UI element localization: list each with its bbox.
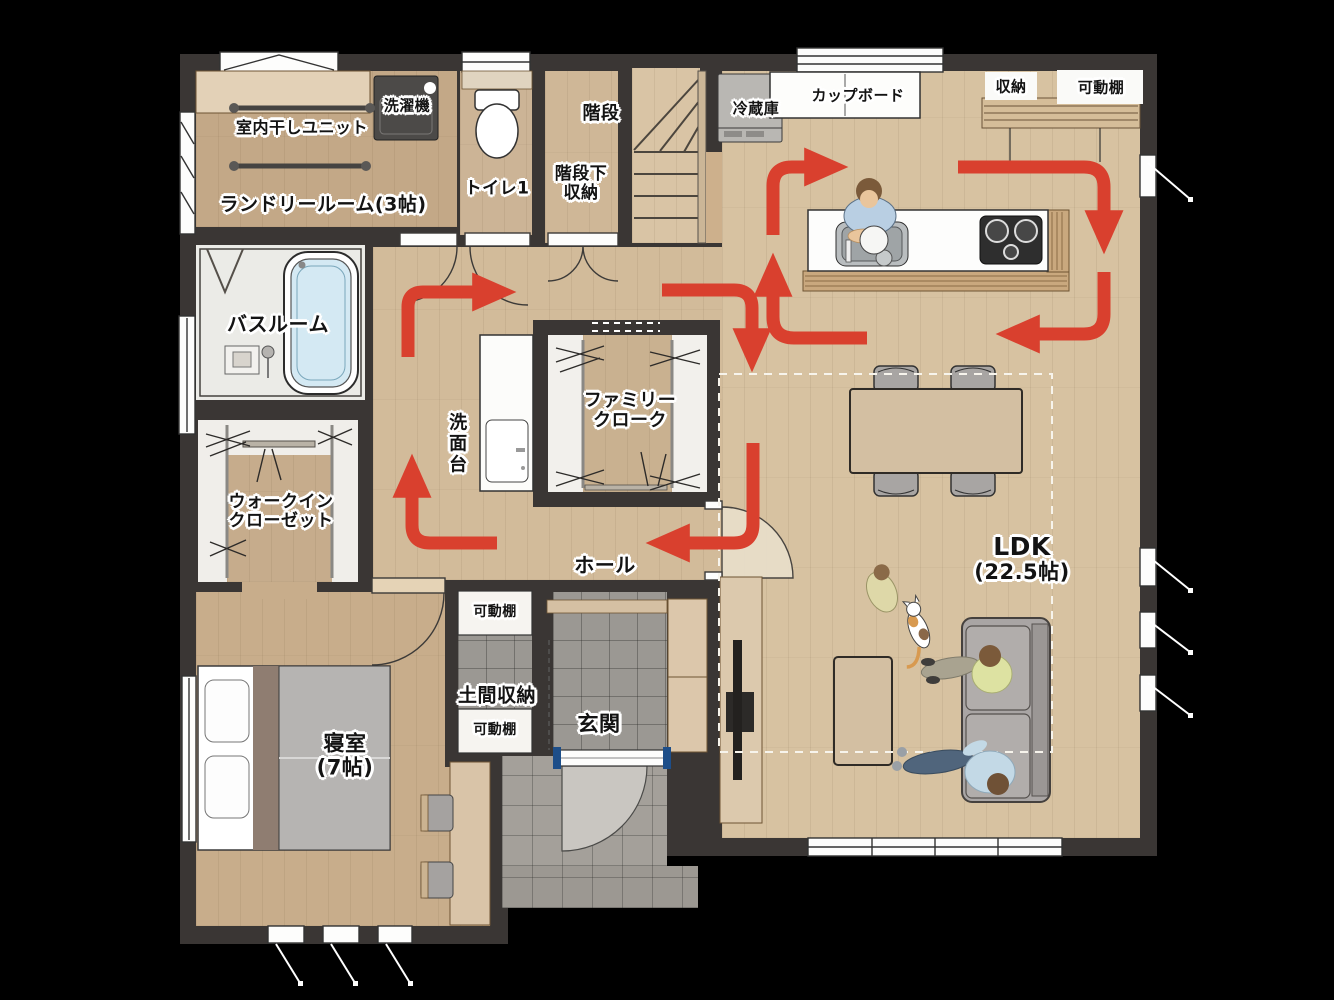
label-washer: 洗濯機 [384,98,431,115]
label-bedroom: 寝室 (7帖) [317,732,374,779]
window-bedroom-bottom-1 [268,926,304,986]
window-right-3 [1140,612,1193,655]
flow-arrow-to-sink [773,167,812,235]
label-bathroom: バスルーム [227,313,329,335]
pillow [205,680,249,742]
dish [860,226,888,254]
label-ldk: LDK (22.5帖) [974,533,1070,585]
label-wic: ウォークイン クローゼット [229,493,334,531]
label-hall: ホール [574,554,636,576]
window-bedroom-bottom-2 [323,926,359,986]
bedroom-desk [421,762,490,925]
washroom-door [400,233,457,246]
label-laundry-room: ランドリールーム(3帖) [219,194,426,215]
entrance-door-post-left [553,747,561,769]
genkan-step [547,600,667,613]
tv [733,640,742,780]
flow-arrow-up-kitchen [773,289,867,338]
bedroom-door [372,578,445,593]
under-stair-doors [548,233,618,246]
label-storage: 収納 [995,79,1026,96]
label-doma-shelf-top: 可動棚 [473,605,517,621]
label-laundry-unit: 室内干しユニット [236,119,368,137]
stairs-treads [634,78,700,218]
label-family-cloak: ファミリー クローク [584,391,677,431]
window-right-2 [1140,548,1193,593]
vanity-unit [480,335,533,491]
stair-landing [706,152,722,243]
desk-chair [421,795,453,831]
label-cupboard: カップボード [811,88,904,105]
plan-overlay [0,0,1334,1000]
shoe-cabinet [668,599,707,752]
bath-folding-door [207,249,243,292]
sink-faucet [846,240,851,262]
window-top-kitchen [797,48,943,72]
label-toilet: トイレ1 [465,179,530,198]
label-stairs: 階段 [583,104,620,124]
tv-board [720,577,762,823]
label-under-stair: 階段下 収納 [555,165,608,203]
label-doma: 土間収納 [458,685,536,706]
label-doma-shelf-bottom: 可動棚 [473,723,517,739]
label-fridge: 冷蔵庫 [733,101,780,118]
dining-set [850,366,1022,496]
toilet-door [465,233,530,246]
wic-opening [242,582,317,599]
window-right-1 [1140,155,1193,202]
label-vanity: 洗面台 [446,413,466,476]
kitchen-island [803,210,1069,291]
shower-fixture [262,346,274,358]
window-left-laundry [180,112,195,234]
toilet-fixture [462,71,532,158]
pillow [205,756,249,818]
coffee-table [834,657,892,765]
flow-arrow-to-washroom [412,490,497,543]
flow-arrow-into-ldk [662,290,752,336]
label-genkan: 玄関 [578,713,621,737]
person-child [858,562,905,617]
cloak-open-entry-dashed [592,323,660,331]
window-bedroom-bottom-3 [378,926,413,986]
desk-chair [421,862,453,898]
stair-rail [698,71,706,243]
flow-arrow-to-toilet [408,292,480,357]
entrance-door-swing [562,766,647,851]
floor-plan: 室内干しユニット 洗濯機 ランドリールーム(3帖) トイレ1 階段下 収納 階段… [0,0,1334,1000]
label-shelf-top-right: 可動棚 [1078,80,1125,97]
entrance-door-post-right [663,747,671,769]
window-right-4 [1140,675,1193,718]
dining-table [850,389,1022,473]
